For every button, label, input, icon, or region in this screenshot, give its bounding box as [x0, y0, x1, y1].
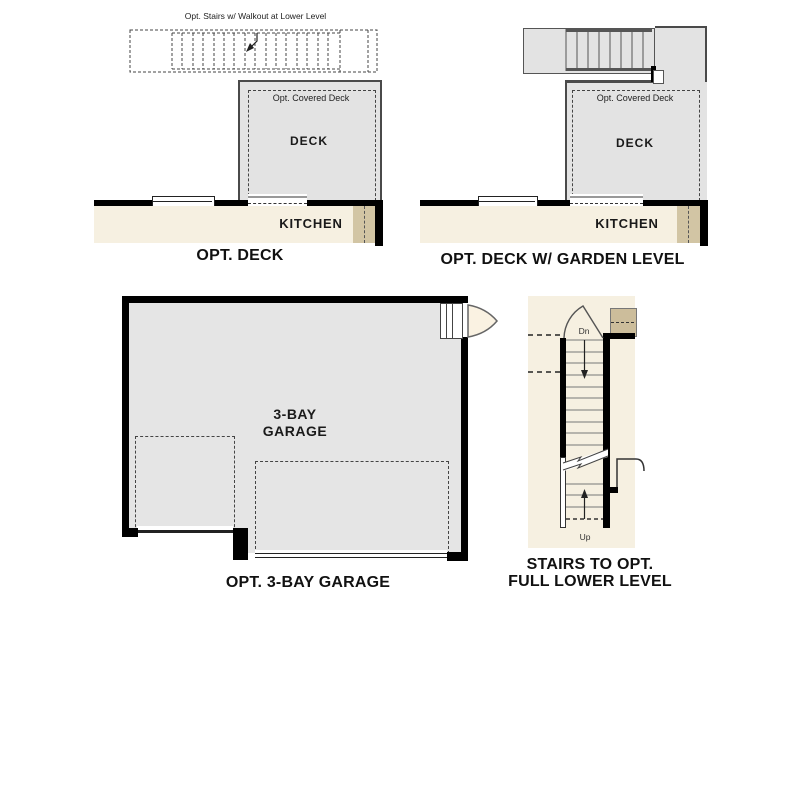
- up-label: Up: [580, 532, 591, 542]
- sliding-door-dashed: [248, 203, 307, 204]
- door-frame-line: [452, 304, 453, 338]
- opt-deck-caption: OPT. DECK: [150, 247, 330, 265]
- door-swing-icon: [468, 305, 497, 337]
- garage-wall-top: [122, 296, 468, 303]
- stairs-caption: STAIRS TO OPT. FULL LOWER LEVEL: [488, 556, 692, 590]
- garage-wall-right: [461, 337, 468, 561]
- stairs-caption-line2: FULL LOWER LEVEL: [488, 573, 692, 590]
- sliding-door-track: [248, 196, 307, 198]
- window-mullion: [479, 201, 535, 202]
- floor-plan-sheet: Opt. Stairs w/ Walkout at Lower Level: [0, 0, 810, 810]
- garden-stairs: [523, 28, 655, 74]
- cabinet-dashed-line: [364, 206, 365, 243]
- optional-stairs-dashed-outline: [125, 26, 385, 78]
- reference-dashed-lines: [528, 335, 560, 372]
- covered-deck-label-garden: Opt. Covered Deck: [572, 93, 698, 103]
- garage-door2-line1: [255, 553, 447, 554]
- garage-bay1-dashed: [135, 436, 235, 532]
- kitchen-label-garden: KITCHEN: [577, 216, 677, 231]
- stairs-detail-drawing: Dn: [520, 290, 660, 552]
- garage-label-line1: 3-BAY: [235, 406, 355, 423]
- sliding-door-track: [570, 196, 643, 198]
- man-door-frame: [440, 303, 463, 339]
- garage-door2-line2: [255, 557, 447, 558]
- deck-room-label: DECK: [238, 134, 380, 148]
- garage-step-wall: [233, 528, 248, 560]
- garage-caption: OPT. 3-BAY GARAGE: [183, 574, 433, 592]
- opt-deck-garden-caption: OPT. DECK W/ GARDEN LEVEL: [415, 251, 710, 269]
- window-mullion: [153, 201, 212, 202]
- sliding-door-dashed: [570, 203, 643, 204]
- break-line-icon: [563, 449, 608, 471]
- garage-bay2-dashed: [255, 461, 449, 554]
- side-wall-garden: [700, 200, 708, 246]
- stairs-caption-line1: STAIRS TO OPT.: [488, 556, 692, 573]
- stair-treads-icon: [566, 29, 652, 71]
- garage-door2-opening: [255, 550, 447, 560]
- deck-room-label-garden: DECK: [585, 136, 685, 150]
- opt-stairs-note: Opt. Stairs w/ Walkout at Lower Level: [148, 11, 363, 21]
- down-arrow-icon: [581, 340, 588, 379]
- garage-room-label: 3-BAY GARAGE: [235, 406, 355, 440]
- kitchen-label: KITCHEN: [261, 216, 361, 231]
- dn-label: Dn: [579, 326, 590, 336]
- door-frame-line: [446, 304, 447, 338]
- garage-label-line2: GARAGE: [235, 423, 355, 440]
- garage-corner-bl: [122, 528, 138, 537]
- garage-bay-cutout: [108, 536, 233, 568]
- deck-top-edge: [565, 80, 653, 83]
- garage-wall-left: [122, 296, 129, 537]
- up-arrow-icon: [581, 489, 588, 519]
- side-wall: [375, 200, 383, 246]
- man-door-swing: [468, 300, 502, 342]
- garage-door1: [137, 530, 233, 533]
- stair-door-jamb: [653, 70, 664, 84]
- cabinet-dashed-line: [688, 206, 689, 243]
- handrail-icon: [610, 459, 644, 493]
- dashed-stairs-icon: [130, 30, 377, 72]
- kitchen-cabinet-garden: [677, 206, 700, 243]
- covered-deck-label: Opt. Covered Deck: [248, 93, 374, 103]
